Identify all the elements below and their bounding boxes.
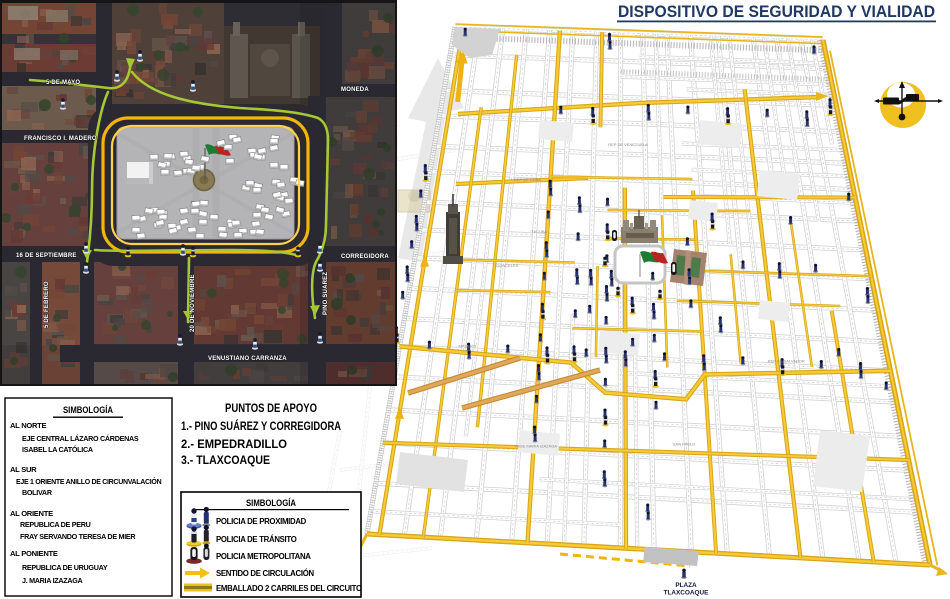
svg-text:REPUBLICA DE URUGUAY: REPUBLICA DE URUGUAY [22, 563, 108, 572]
svg-text:2.- EMPEDRADILLO: 2.- EMPEDRADILLO [181, 437, 287, 451]
svg-text:3.- TLAXCOAQUE: 3.- TLAXCOAQUE [181, 453, 270, 467]
svg-text:TACUBA: TACUBA [531, 229, 547, 234]
svg-text:REP DE VENEZUELA: REP DE VENEZUELA [608, 142, 648, 147]
svg-text:SIMBOLOGÍA: SIMBOLOGÍA [246, 498, 296, 509]
svg-text:PINO SUAREZ: PINO SUAREZ [323, 272, 329, 315]
svg-text:ISABEL LA CATÓLICA: ISABEL LA CATÓLICA [22, 445, 93, 454]
svg-text:JOSE MARIA IZAZAGA: JOSE MARIA IZAZAGA [515, 444, 558, 449]
svg-text:J. MARIA IZAZAGA: J. MARIA IZAZAGA [22, 576, 83, 585]
svg-text:5 DE MAYO: 5 DE MAYO [46, 80, 80, 86]
svg-text:AL PONIENTE: AL PONIENTE [10, 549, 58, 558]
svg-text:SAN PABLO: SAN PABLO [673, 442, 695, 447]
svg-text:POLICIA DE TRÁNSITO: POLICIA DE TRÁNSITO [216, 535, 297, 544]
svg-text:20 DE NOVIEMBRE: 20 DE NOVIEMBRE [190, 274, 196, 332]
svg-text:VENUSTIANO CARRANZA: VENUSTIANO CARRANZA [208, 356, 287, 362]
svg-text:DONCELES: DONCELES [496, 263, 518, 268]
svg-text:REP DE SALVADOR: REP DE SALVADOR [768, 359, 805, 364]
svg-text:CORREGIDORA: CORREGIDORA [341, 254, 389, 260]
svg-text:EMBALLADO 2 CARRILES DEL CIRCU: EMBALLADO 2 CARRILES DEL CIRCUITO [216, 584, 362, 593]
svg-text:FRAY SERVANDO TERESA DE MIER: FRAY SERVANDO TERESA DE MIER [20, 532, 136, 541]
svg-text:PUNTOS DE APOYO: PUNTOS DE APOYO [225, 401, 317, 415]
svg-text:EJE 1 ORIENTE ANILLO DE CIRCUN: EJE 1 ORIENTE ANILLO DE CIRCUNVALACIÓN [16, 477, 162, 486]
svg-text:EJE CENTRAL LÁZARO CÁRDENAS: EJE CENTRAL LÁZARO CÁRDENAS [22, 434, 139, 443]
svg-text:MONEDA: MONEDA [341, 87, 369, 93]
svg-text:AL ORIENTE: AL ORIENTE [10, 509, 53, 518]
svg-text:PLAZA: PLAZA [675, 582, 697, 589]
svg-text:16 DE SEPTIEMBRE: 16 DE SEPTIEMBRE [16, 253, 77, 259]
svg-text:AL SUR: AL SUR [10, 465, 37, 474]
svg-text:TLAXCOAQUE: TLAXCOAQUE [664, 590, 709, 597]
svg-text:REPUBLICA DE PERU: REPUBLICA DE PERU [20, 520, 91, 529]
svg-text:SENTIDO DE CIRCULACIÓN: SENTIDO DE CIRCULACIÓN [216, 569, 314, 578]
svg-text:SIMBOLOGÍA: SIMBOLOGÍA [63, 405, 113, 416]
svg-text:POLICIA METROPOLITANA: POLICIA METROPOLITANA [216, 552, 311, 561]
svg-text:POLICIA DE PROXIMIDAD: POLICIA DE PROXIMIDAD [216, 517, 307, 526]
svg-text:5 DE FEBRERO: 5 DE FEBRERO [44, 281, 50, 328]
svg-text:REP DE CUBA: REP DE CUBA [514, 177, 541, 182]
svg-text:MADERO: MADERO [459, 343, 477, 348]
svg-text:FRANCISCO I. MADERO: FRANCISCO I. MADERO [24, 136, 97, 142]
svg-text:DISPOSITIVO DE SEGURIDAD Y VIA: DISPOSITIVO DE SEGURIDAD Y VIALIDAD [618, 3, 935, 21]
svg-text:AL NORTE: AL NORTE [10, 421, 47, 430]
svg-text:1.- PINO SUÁREZ Y CORREGIDORA: 1.- PINO SUÁREZ Y CORREGIDORA [181, 418, 341, 433]
svg-text:BOLIVAR: BOLIVAR [22, 488, 53, 497]
